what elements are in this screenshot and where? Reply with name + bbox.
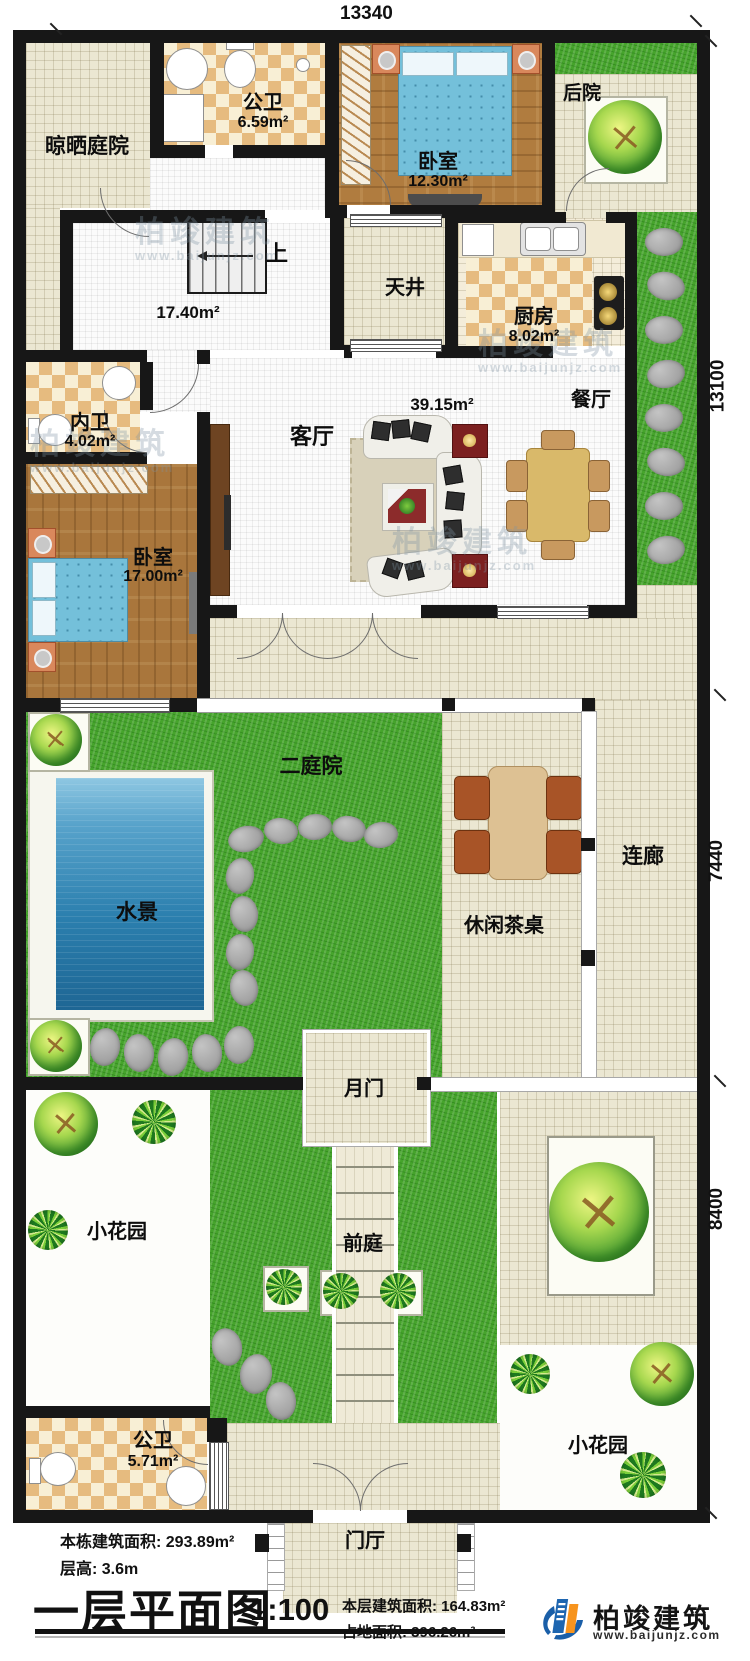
wall-courtyard-south xyxy=(26,1077,303,1090)
floor-plan: 晾晒庭院 公卫 6.59m² 卧室 12.30m² 后院 上 17.40m² 天… xyxy=(0,0,750,1661)
backyard-tree xyxy=(588,100,662,174)
side-table-top xyxy=(452,424,488,458)
sofa-cushion-2 xyxy=(391,419,411,439)
kitchen-sink-bowl-2 xyxy=(553,227,579,251)
garden-left-shrub-2 xyxy=(28,1210,68,1250)
sofa-cushion-5 xyxy=(445,491,465,511)
dining-chair-right-1 xyxy=(588,460,610,492)
garden-right-shrub-1 xyxy=(510,1354,550,1394)
inner-bath-sink xyxy=(102,366,136,400)
wall-gate-column xyxy=(417,1077,431,1090)
backyard-grass xyxy=(555,42,697,74)
wall-outer-bottom-right xyxy=(407,1510,710,1523)
coffee-table-plant xyxy=(399,498,415,514)
stair-arrow-line xyxy=(207,255,253,257)
stove-burner-1 xyxy=(599,283,617,301)
wall-east-inner xyxy=(625,212,637,618)
tea-table xyxy=(488,766,548,880)
side-table-bottom xyxy=(452,554,488,588)
wall-bath2-top xyxy=(26,1406,210,1418)
wall-outer-top xyxy=(13,30,710,43)
living-south-window xyxy=(497,606,589,619)
label-bath1-area: 6.59m² xyxy=(238,115,289,132)
stepping-stone xyxy=(645,492,683,520)
dim-right-bottom: 8400 xyxy=(706,1188,728,1230)
label-corridor: 连廊 xyxy=(622,846,664,868)
bath2-window xyxy=(209,1442,229,1510)
front-shrub-2 xyxy=(323,1273,359,1309)
wall-outer-right xyxy=(697,30,710,1523)
label-garden-right: 小花园 xyxy=(568,1436,628,1457)
foyer-column-right xyxy=(457,1534,471,1552)
terrace-sill xyxy=(197,698,442,713)
label-moon-gate: 月门 xyxy=(344,1079,384,1100)
pavilion-top-band xyxy=(442,698,595,713)
stepping-stone xyxy=(645,228,683,256)
bath1-washer xyxy=(162,94,204,142)
east-tile-patch xyxy=(637,585,697,618)
bath1-sink xyxy=(166,48,208,90)
wall-bath1-bottom-l xyxy=(150,145,205,158)
bedroom1-nightstand-right xyxy=(512,44,540,74)
right-big-tree xyxy=(549,1162,649,1262)
courtyard-tree-1 xyxy=(30,714,82,766)
stove-burner-2 xyxy=(599,307,617,325)
label-bath2: 公卫 xyxy=(133,1431,173,1452)
label-bath2-area: 5.71m² xyxy=(128,1454,179,1471)
front-shrub-1 xyxy=(266,1269,302,1305)
wall-hall-left xyxy=(60,210,73,350)
stair-arrow-head xyxy=(197,251,207,261)
dim-top: 13340 xyxy=(340,3,393,25)
bedroom2-pillow-2 xyxy=(32,600,56,636)
wall-kitchen-top-l xyxy=(458,212,566,223)
water-feature xyxy=(56,778,204,1010)
bath2-sink xyxy=(166,1466,206,1506)
company-logo-icon xyxy=(538,1593,586,1643)
wall-innerbath-bottom xyxy=(26,452,147,464)
sofa-cushion-4 xyxy=(443,465,464,486)
bedroom1-pillow-1 xyxy=(402,52,454,76)
label-bedroom2-area: 17.00m² xyxy=(123,569,183,586)
corridor-floor xyxy=(595,700,697,1077)
sofa-cushion-1 xyxy=(371,421,391,441)
tea-chair-1 xyxy=(454,776,490,820)
label-water: 水景 xyxy=(116,902,158,924)
wall-bedroom2-right-b xyxy=(197,412,210,698)
wall-innerbath-top xyxy=(26,350,147,362)
label-tea-table: 休闲茶桌 xyxy=(464,916,544,937)
bedroom2-nightstand-2 xyxy=(28,642,56,672)
label-backyard: 后院 xyxy=(563,84,601,104)
label-foyer: 门厅 xyxy=(345,1531,385,1552)
wall-living-bottom-b xyxy=(421,605,497,618)
pavilion-column-nw xyxy=(442,698,455,711)
label-bedroom1: 卧室 xyxy=(418,152,458,173)
tea-chair-3 xyxy=(546,776,582,820)
patio-window-top xyxy=(350,214,442,227)
label-bedroom1-area: 12.30m² xyxy=(408,174,468,191)
garden-right-shrub-2 xyxy=(620,1452,666,1498)
pavilion-west-band xyxy=(581,711,597,1079)
dining-chair-left-2 xyxy=(506,500,528,532)
stepping-stone xyxy=(645,404,683,432)
pavilion-column-ne xyxy=(582,698,595,711)
bedroom2-wardrobe xyxy=(30,466,148,494)
wall-bedroom2-bottom-b xyxy=(168,698,197,712)
label-inner-bath: 内卫 xyxy=(70,413,110,434)
patio-window-bottom xyxy=(350,339,442,352)
drying-yard-floor-ext xyxy=(26,208,60,350)
footprint-text: 占地面积: 396.26m² xyxy=(342,1621,475,1642)
wall-bath1-bedroom1 xyxy=(325,42,339,218)
front-shrub-3 xyxy=(380,1273,416,1309)
floor-area-text: 本层建筑面积: 164.83m² xyxy=(342,1595,505,1616)
label-kitchen: 厨房 xyxy=(514,307,554,328)
wall-bedroom2-right-a xyxy=(197,350,210,364)
dining-chair-bottom xyxy=(541,540,575,560)
dim-tick xyxy=(714,689,727,702)
stepping-stone xyxy=(645,316,683,344)
wall-kitchen-bottom xyxy=(445,346,553,358)
label-drying-yard: 晾晒庭院 xyxy=(45,136,129,158)
tea-chair-2 xyxy=(454,830,490,874)
wall-bedroom2-bottom-a xyxy=(26,698,60,712)
label-courtyard2: 二庭院 xyxy=(280,756,343,778)
kitchen-sink-bowl-1 xyxy=(525,227,551,251)
label-front-yard: 前庭 xyxy=(343,1234,383,1255)
tv-screen xyxy=(224,495,231,550)
dining-chair-left-1 xyxy=(506,460,528,492)
wall-hall-patio xyxy=(330,205,344,350)
building-area-text: 本栋建筑面积: 293.89m² xyxy=(60,1528,234,1552)
hall-floor-upper xyxy=(150,158,330,210)
bath1-shower-icon xyxy=(296,58,310,72)
label-living: 客厅 xyxy=(290,425,334,448)
garden-right-tree xyxy=(630,1342,694,1406)
label-kitchen-area: 8.02m² xyxy=(509,329,560,346)
sofa-cushion-6 xyxy=(443,519,462,538)
wall-bedroom1-right xyxy=(542,42,555,218)
garden-left-tree xyxy=(34,1092,98,1156)
dim-tick xyxy=(714,1075,727,1088)
wall-outer-bottom-left xyxy=(13,1510,313,1523)
dim-right-top: 13100 xyxy=(707,360,729,413)
label-stairs-up: 上 xyxy=(266,242,288,265)
garden-left-shrub-1 xyxy=(132,1100,176,1144)
wall-living-bottom-a xyxy=(210,605,237,618)
label-inner-bath-area: 4.02m² xyxy=(65,434,116,451)
drying-yard-floor xyxy=(26,42,150,208)
bedroom1-pillow-2 xyxy=(456,52,508,76)
tea-chair-4 xyxy=(546,830,582,874)
wall-patio-kitchen xyxy=(445,212,458,350)
label-bath1: 公卫 xyxy=(243,93,283,114)
scale-text: 1:100 xyxy=(250,1592,329,1628)
pavilion-column-mid xyxy=(581,838,595,851)
east-grass-strip xyxy=(637,212,697,585)
label-hall-area: 17.40m² xyxy=(156,304,219,322)
label-garden-left: 小花园 xyxy=(87,1222,147,1243)
dining-table xyxy=(526,448,590,542)
bedroom2-nightstand-1 xyxy=(28,528,56,558)
wall-living-bottom-c xyxy=(587,605,637,618)
bath2-toilet xyxy=(40,1452,76,1486)
label-dining: 餐厅 xyxy=(571,390,611,411)
wall-outer-left xyxy=(13,30,26,1523)
wall-bath2-corner xyxy=(207,1418,227,1442)
kitchen-cabinet xyxy=(462,224,494,256)
label-living-area: 39.15m² xyxy=(410,396,473,414)
company-logo-url: www.baijunjz.com xyxy=(593,1628,721,1642)
bath1-toilet xyxy=(224,50,256,88)
pavilion-column-s xyxy=(581,950,595,966)
corridor-south-band xyxy=(430,1077,699,1092)
bedroom2-pillow-1 xyxy=(32,562,56,598)
dining-chair-top xyxy=(541,430,575,450)
bedroom2-south-window xyxy=(60,698,170,713)
label-bedroom2: 卧室 xyxy=(133,548,173,569)
label-patio: 天井 xyxy=(385,278,425,299)
dim-right-mid: 7440 xyxy=(706,840,728,882)
wall-yard-bath xyxy=(150,42,164,158)
dining-chair-right-2 xyxy=(588,500,610,532)
dim-tick xyxy=(690,15,703,28)
courtyard-tree-2 xyxy=(30,1020,82,1072)
bedroom1-nightstand-left xyxy=(372,44,400,74)
sofa-cushion-3 xyxy=(410,421,431,442)
wall-hall-top xyxy=(60,210,265,223)
wall-bath1-bottom-r xyxy=(233,145,337,158)
foyer-column-left xyxy=(255,1534,269,1552)
